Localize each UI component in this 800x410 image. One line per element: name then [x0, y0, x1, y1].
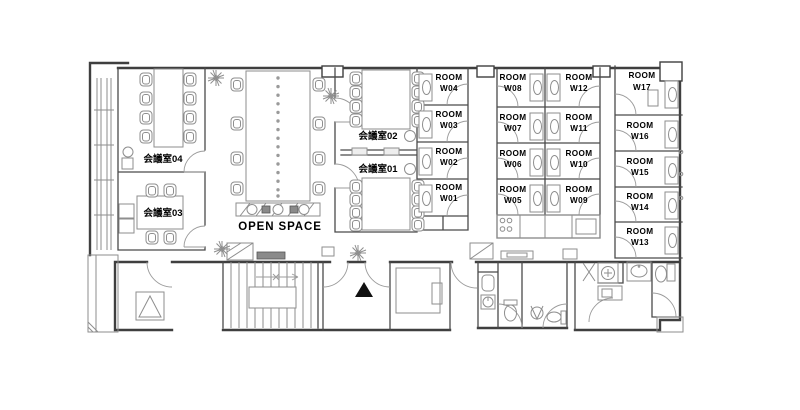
toilet-icon — [547, 312, 561, 322]
meeting-table — [154, 69, 183, 147]
room-w06-label: ROOM — [499, 149, 526, 158]
entrance-marker-icon — [355, 282, 373, 297]
counter — [236, 203, 320, 216]
room-w01-number: W01 — [440, 194, 458, 203]
entrance — [355, 282, 373, 297]
room-w12-number: W12 — [570, 84, 588, 93]
bench — [257, 252, 285, 259]
partition-02-01 — [352, 148, 399, 155]
corridor-furniture — [227, 243, 577, 261]
stool — [405, 131, 416, 142]
room-w05-label: ROOM — [499, 185, 526, 194]
room-w12-label: ROOM — [565, 73, 592, 82]
pillar — [660, 62, 682, 81]
elevator — [136, 292, 164, 320]
floorplan-canvas: 会議室04 会議室03 会議室02 会議室01 OPEN SPACE ROOM … — [0, 0, 800, 410]
plant-icon — [323, 88, 339, 104]
sink — [576, 219, 596, 234]
meeting-room-01-label: 会議室01 — [358, 163, 398, 175]
room-w17-label: ROOM — [628, 71, 655, 80]
room-w10-number: W10 — [570, 160, 588, 169]
room-w07-number: W07 — [504, 124, 522, 133]
room-w16-number: W16 — [631, 132, 649, 141]
coat-stand — [123, 147, 133, 157]
pillar — [322, 66, 343, 77]
room-w13-number: W13 — [631, 238, 649, 247]
room-w02-number: W02 — [440, 158, 458, 167]
room-w14-label: ROOM — [626, 192, 653, 201]
plant-icon — [350, 245, 366, 261]
stool — [405, 164, 416, 175]
room-w09-number: W09 — [570, 196, 588, 205]
plant-icon — [208, 70, 224, 86]
room-w11-label: ROOM — [565, 113, 592, 122]
room-w04-number: W04 — [440, 84, 458, 93]
room-w10-label: ROOM — [565, 149, 592, 158]
stove-burner — [500, 218, 505, 223]
meeting-room-02-label: 会議室02 — [358, 130, 397, 142]
room-w02-label: ROOM — [435, 147, 462, 156]
office-floorplan: 会議室04 会議室03 会議室02 会議室01 OPEN SPACE ROOM … — [0, 0, 800, 410]
meeting-table — [362, 178, 410, 230]
elevator-shaft — [396, 268, 442, 313]
room-w15-label: ROOM — [626, 157, 653, 166]
meeting-room-04-label: 会議室04 — [143, 153, 183, 165]
toilet-icon — [656, 266, 667, 282]
room-w05-number: W05 — [504, 196, 522, 205]
room-w13-label: ROOM — [626, 227, 653, 236]
toilet-tank — [504, 300, 517, 305]
pillar — [593, 66, 610, 77]
pillar — [477, 66, 494, 77]
kitchenette — [497, 215, 600, 238]
meeting-room-03-label: 会議室03 — [143, 207, 182, 219]
stairs — [231, 262, 311, 328]
room-w11-number: W11 — [570, 124, 588, 133]
bifold-closet-door — [583, 263, 595, 281]
room-w09-label: ROOM — [565, 185, 592, 194]
shelf — [119, 204, 134, 218]
urinal — [482, 275, 494, 291]
bench — [501, 251, 533, 259]
room-w17-number: W17 — [633, 83, 651, 92]
toilet-tank — [667, 264, 675, 281]
cabinet — [648, 90, 658, 106]
room-w15-number: W15 — [631, 168, 649, 177]
room-w06-number: W06 — [504, 160, 522, 169]
stair-landing — [249, 287, 296, 308]
meeting-table — [362, 70, 410, 129]
open-space-label: OPEN SPACE — [238, 221, 322, 233]
elevator-cab — [396, 268, 440, 313]
terrace — [88, 255, 118, 332]
room-w16-label: ROOM — [626, 121, 653, 130]
restrooms-left — [481, 275, 566, 324]
room-w01-label: ROOM — [435, 183, 462, 192]
room-w03-label: ROOM — [435, 110, 462, 119]
shelf — [119, 219, 134, 233]
room-w08-label: ROOM — [499, 73, 526, 82]
room-w04-label: ROOM — [435, 73, 462, 82]
room-w08-number: W08 — [504, 84, 522, 93]
room-w07-label: ROOM — [499, 113, 526, 122]
room-w14-number: W14 — [631, 203, 649, 212]
restrooms-right — [598, 262, 683, 332]
room-w03-number: W03 — [440, 121, 458, 130]
